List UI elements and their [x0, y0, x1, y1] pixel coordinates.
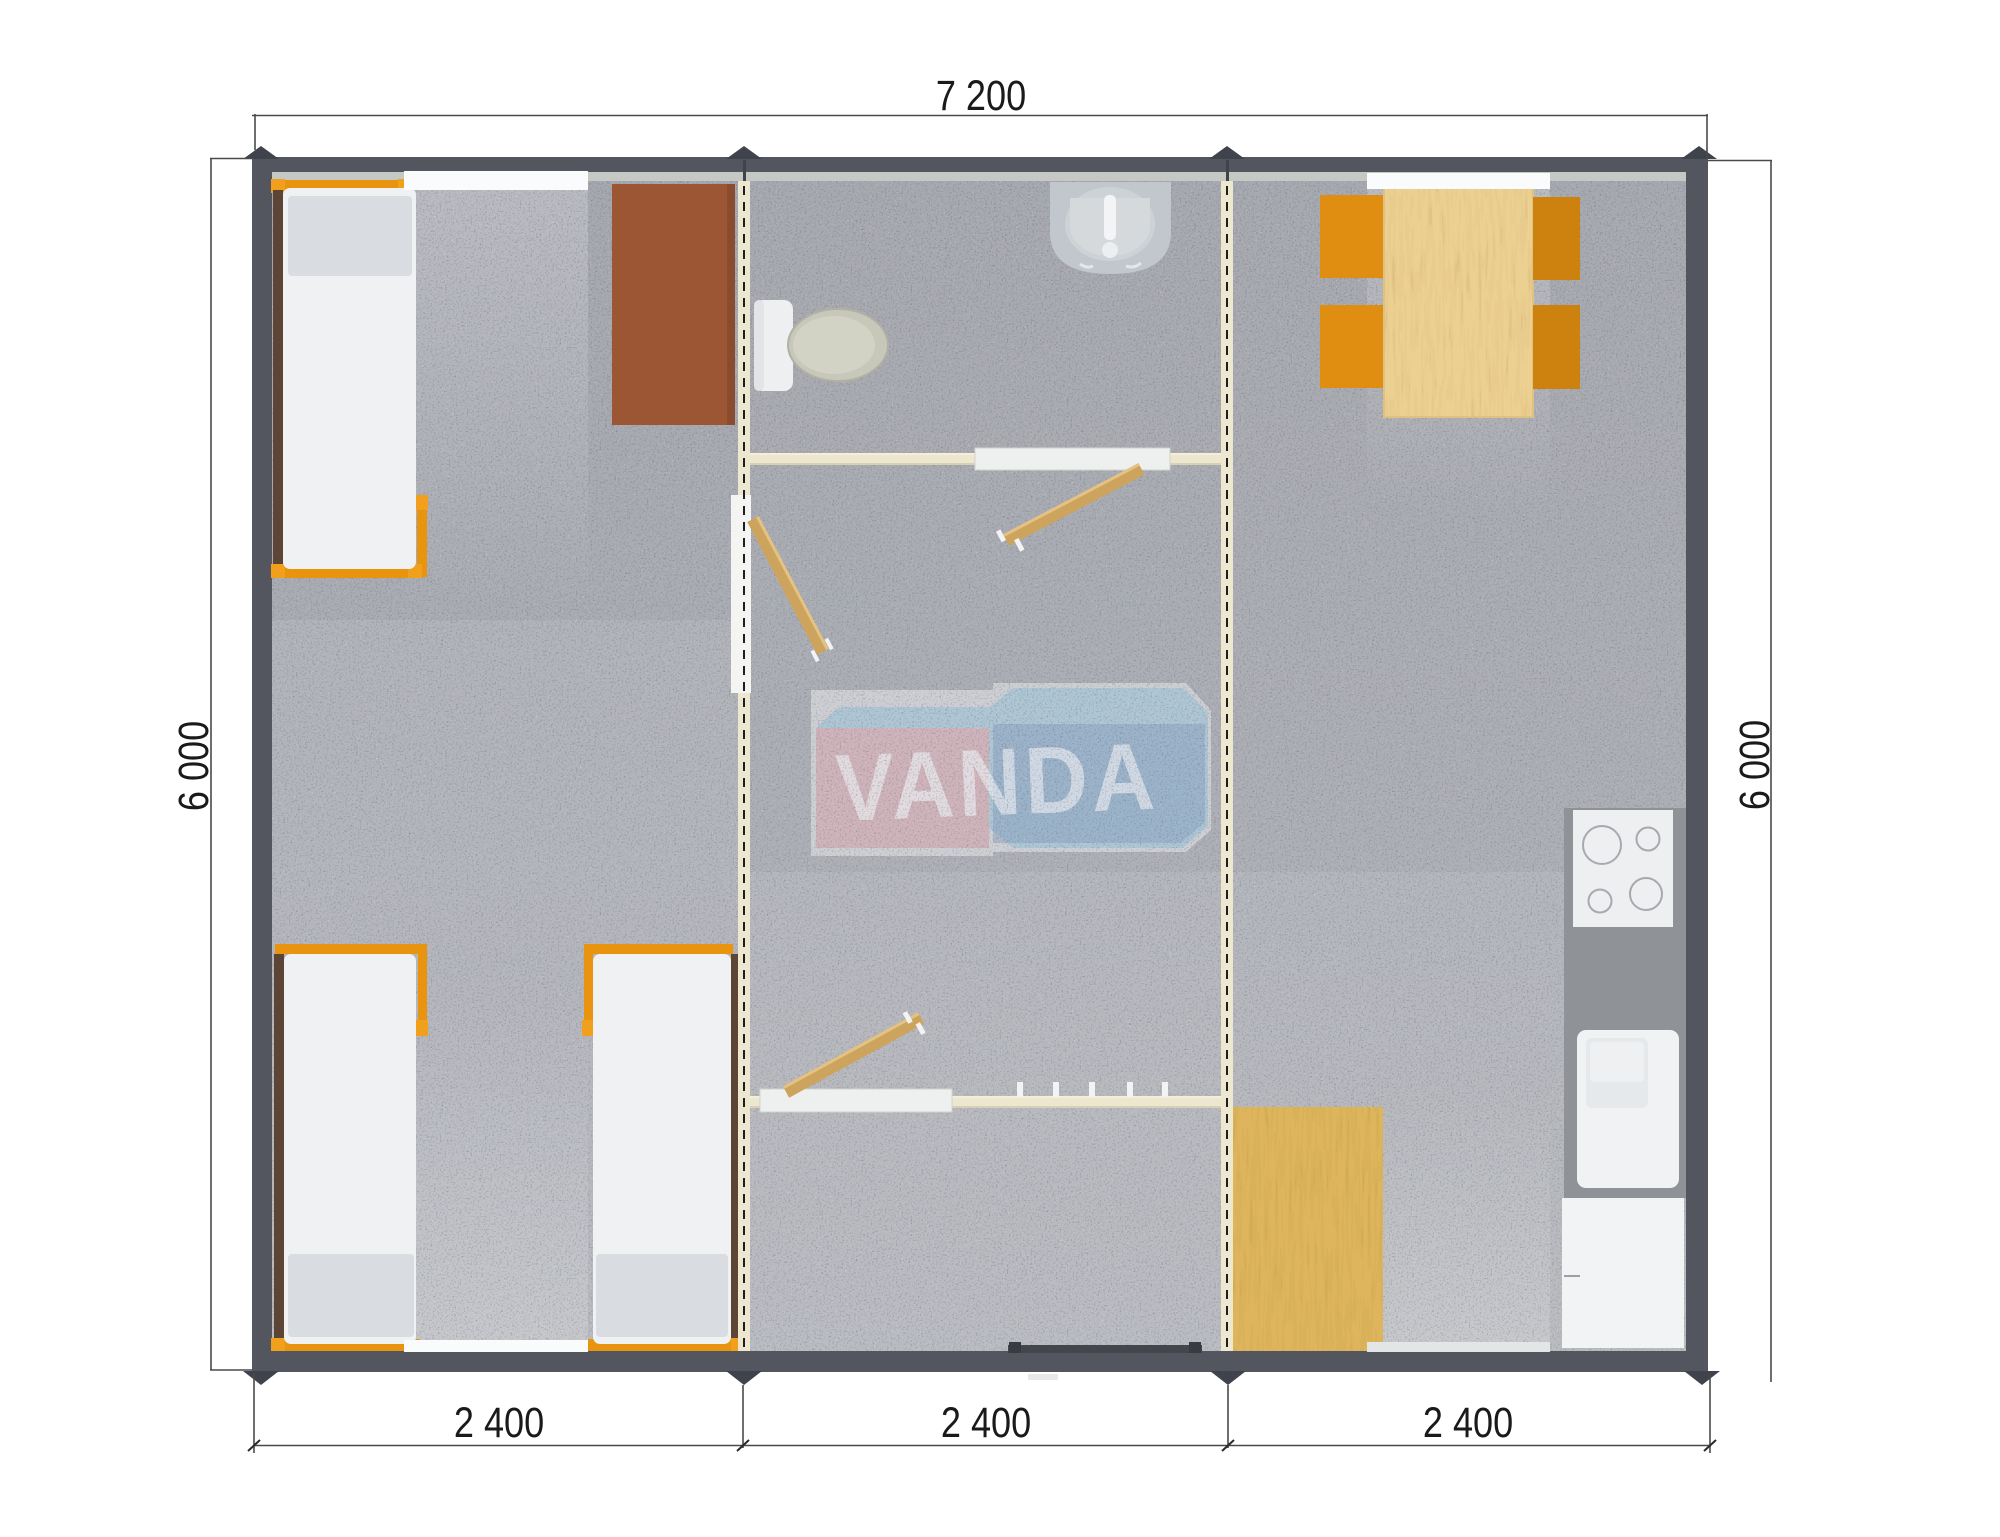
svg-text:2 400: 2 400: [454, 1399, 544, 1447]
svg-text:7 200: 7 200: [936, 72, 1026, 120]
svg-text:2 400: 2 400: [941, 1399, 1031, 1447]
svg-text:2 400: 2 400: [1423, 1399, 1513, 1447]
svg-text:6 000: 6 000: [1731, 720, 1779, 810]
svg-text:6 000: 6 000: [170, 721, 218, 811]
